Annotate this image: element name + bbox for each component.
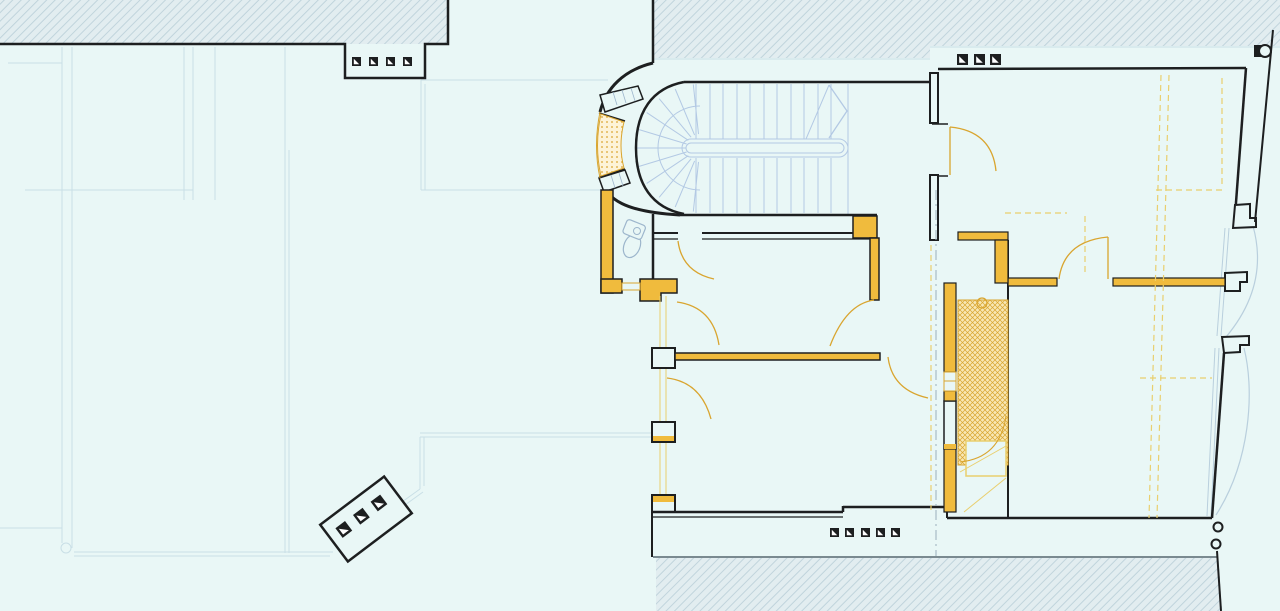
light-switch-symbol bbox=[845, 528, 854, 537]
round-column bbox=[1259, 45, 1271, 57]
window-sill bbox=[653, 496, 674, 502]
walls-existing-line-24 bbox=[938, 68, 1246, 69]
light-switch-symbol bbox=[830, 528, 839, 537]
new-partition bbox=[958, 232, 1008, 240]
downpipe bbox=[1214, 523, 1223, 532]
floor-plan-canvas bbox=[0, 0, 1280, 611]
light-switch-symbol bbox=[891, 528, 900, 537]
threshold bbox=[622, 283, 640, 290]
new-wall bbox=[995, 240, 1008, 283]
window-sill bbox=[944, 444, 956, 449]
new-partition bbox=[1008, 278, 1057, 286]
downpipe bbox=[1212, 540, 1221, 549]
new-wall bbox=[944, 391, 956, 401]
landing bbox=[966, 441, 1006, 476]
building-mass-top-left bbox=[0, 0, 448, 44]
entry-threshold bbox=[598, 114, 625, 176]
walls-existing-rect-23 bbox=[930, 175, 938, 240]
new-wall bbox=[870, 238, 879, 300]
light-switch-symbol bbox=[352, 57, 361, 66]
new-wall bbox=[944, 283, 956, 372]
floor-plan-stage bbox=[0, 0, 1280, 611]
light-switch-symbol bbox=[386, 57, 395, 66]
walls-existing-rect-22 bbox=[930, 73, 938, 123]
new-partition bbox=[1113, 278, 1225, 286]
light-switch-symbol bbox=[990, 54, 1001, 65]
new-partition bbox=[675, 353, 880, 360]
light-switch-symbol bbox=[876, 528, 885, 537]
light-switch-symbol bbox=[403, 57, 412, 66]
new-wall bbox=[601, 279, 622, 293]
building-mass-bottom bbox=[656, 558, 1222, 611]
new-wall bbox=[853, 216, 877, 238]
light-switch-symbol bbox=[974, 54, 985, 65]
window-pier bbox=[652, 348, 675, 368]
window bbox=[944, 401, 956, 449]
light-switch-symbol bbox=[957, 54, 968, 65]
window-sill bbox=[653, 436, 674, 441]
light-switch-symbol bbox=[369, 57, 378, 66]
light-switch-symbol bbox=[861, 528, 870, 537]
new-wall bbox=[944, 449, 956, 512]
new-wall bbox=[601, 190, 613, 293]
